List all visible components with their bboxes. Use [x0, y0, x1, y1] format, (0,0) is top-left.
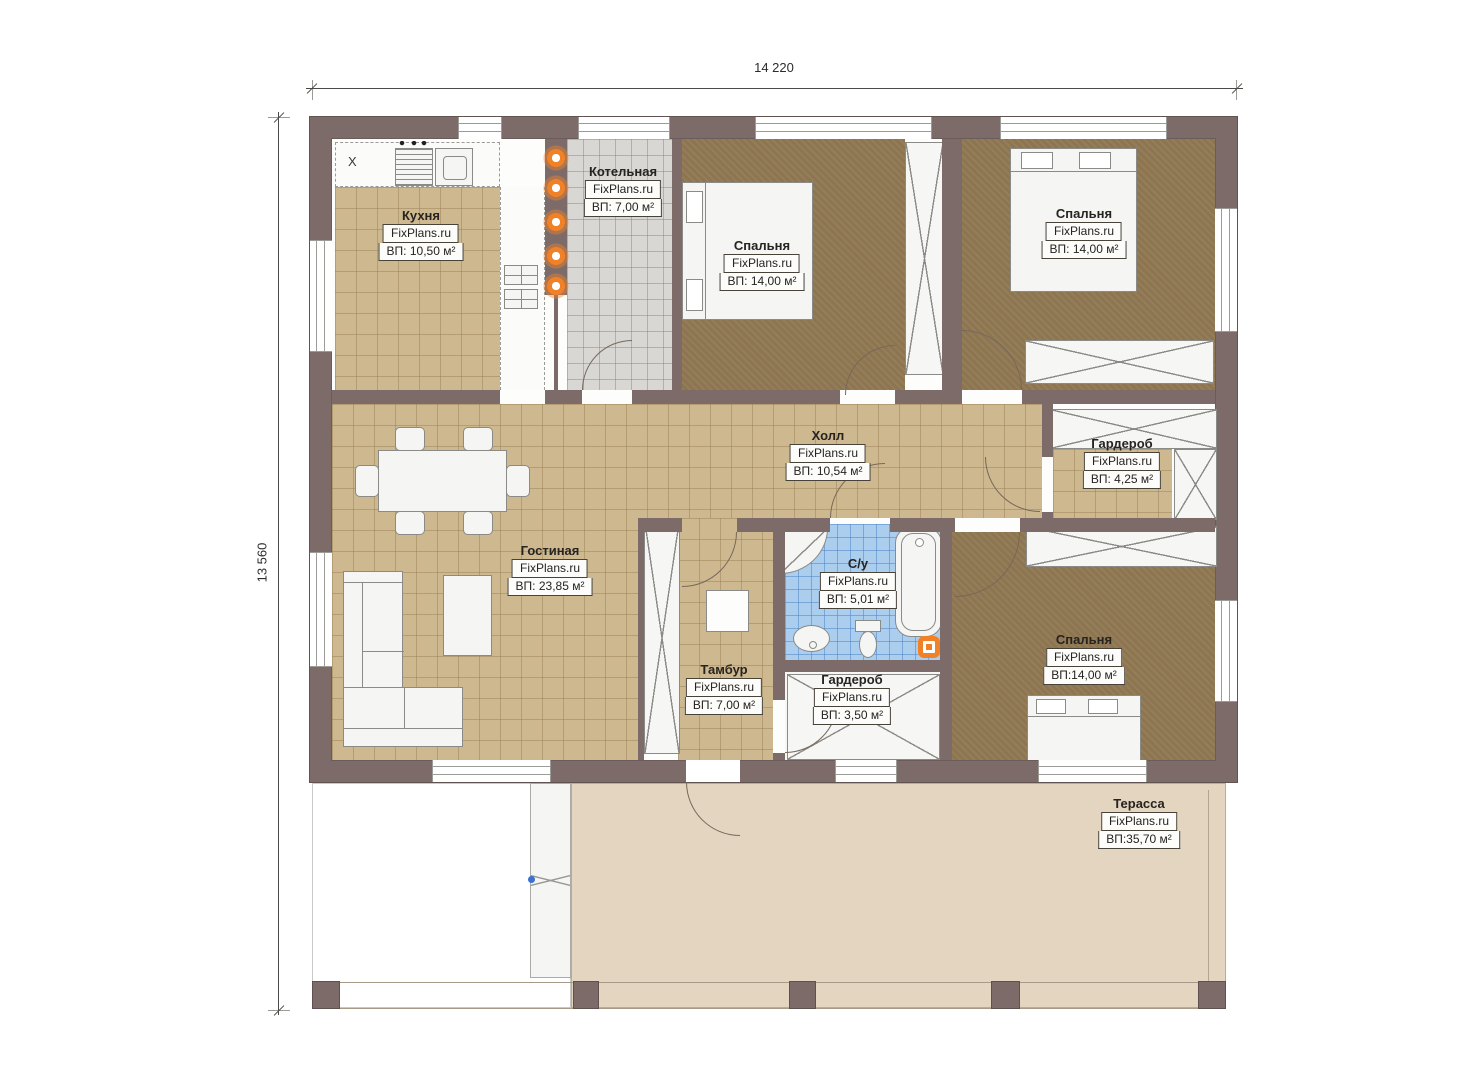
window — [578, 117, 670, 139]
pillow — [686, 279, 703, 311]
bed-footboard-line — [1028, 716, 1140, 717]
window — [835, 760, 897, 782]
terrace-post — [573, 981, 599, 1009]
bed-headboard-line — [1011, 171, 1136, 172]
radiator-icon — [543, 243, 569, 269]
dimension-left-label: 13 560 — [255, 523, 270, 603]
bed-bedroom-bottom — [1027, 695, 1141, 760]
room-area: ВП: 5,01 м² — [819, 591, 897, 609]
room-brand: FixPlans.ru — [512, 559, 588, 578]
floor-plan-canvas: 14 220 13 560 — [0, 0, 1474, 1080]
sink — [793, 625, 830, 652]
toilet-bowl — [859, 631, 877, 658]
terrace-door-opening — [686, 760, 740, 782]
room-brand: FixPlans.ru — [585, 180, 661, 199]
room-brand: FixPlans.ru — [1046, 648, 1122, 667]
room-label-wardrobe-right: Гардероб FixPlans.ru ВП: 4,25 м² — [1083, 436, 1161, 489]
room-area: ВП: 7,00 м² — [584, 199, 662, 217]
chair — [463, 427, 493, 451]
room-name: Гардероб — [1091, 436, 1152, 451]
wall-segment — [773, 518, 785, 700]
room-label-vestibule: Тамбур FixPlans.ru ВП: 7,00 м² — [685, 662, 763, 715]
wall-segment — [1022, 390, 1215, 404]
room-area: ВП: 14,00 м² — [720, 273, 805, 291]
room-brand: FixPlans.ru — [1084, 452, 1160, 471]
room-area: ВП: 7,00 м² — [685, 697, 763, 715]
fridge-symbol: X — [348, 154, 357, 169]
chair — [506, 465, 530, 497]
wall-segment — [638, 518, 644, 760]
stove-icon — [395, 148, 433, 186]
pillow — [1079, 152, 1111, 169]
window — [458, 117, 502, 139]
wall-segment — [940, 518, 952, 760]
sofa-section-horizontal — [343, 687, 463, 747]
sink-basin — [443, 156, 467, 180]
room-name: Гостиная — [521, 543, 580, 558]
wall-segment — [332, 390, 500, 404]
room-label-bedroom-middle: Спальня FixPlans.ru ВП: 14,00 м² — [720, 238, 805, 291]
bed-headboard-line — [705, 183, 706, 319]
room-area: ВП: 4,25 м² — [1083, 471, 1161, 489]
terrace-post — [991, 981, 1020, 1009]
cooktop-icon — [504, 265, 538, 285]
floor-hatch-vestibule — [706, 590, 749, 632]
dimension-top-label: 14 220 — [734, 60, 814, 75]
bathtub-drain — [915, 538, 924, 547]
radiator-icon — [543, 145, 569, 171]
entry-ramp — [530, 783, 571, 978]
room-area: ВП: 3,50 м² — [813, 707, 891, 725]
wall-segment — [785, 660, 940, 672]
room-brand: FixPlans.ru — [724, 254, 800, 273]
window — [755, 117, 932, 139]
sink-drain — [809, 641, 817, 649]
room-label-hall: Холл FixPlans.ru ВП: 10,54 м² — [786, 428, 871, 481]
wall-segment — [554, 295, 558, 390]
dimension-extension — [312, 80, 313, 100]
terrace-post — [312, 981, 340, 1009]
bathtub-inner — [901, 533, 936, 631]
wardrobe-x-bedroom-right — [1025, 340, 1214, 384]
pillow — [1088, 699, 1118, 714]
room-name: Терасса — [1113, 796, 1165, 811]
cooktop-icon — [504, 289, 538, 309]
radiator-icon — [543, 209, 569, 235]
terrace-step-line — [312, 1008, 1226, 1009]
terrace-post — [1198, 981, 1226, 1009]
room-label-living: Гостиная FixPlans.ru ВП: 23,85 м² — [508, 543, 593, 596]
terrace-step-line — [312, 982, 1226, 983]
room-area: ВП: 10,54 м² — [786, 463, 871, 481]
window — [1215, 600, 1237, 702]
wall-segment — [638, 518, 682, 532]
window — [310, 552, 332, 667]
radiator-icon — [543, 175, 569, 201]
room-brand: FixPlans.ru — [383, 224, 459, 243]
sofa-cushion-line — [362, 651, 404, 652]
pillow — [686, 191, 703, 223]
coffee-table — [443, 575, 492, 656]
room-name: Спальня — [1056, 206, 1112, 221]
wardrobe-x-bedroom-middle — [905, 142, 944, 375]
window — [1000, 117, 1167, 139]
wall-segment — [1042, 512, 1053, 518]
window — [310, 240, 332, 352]
room-area: ВП:14,00 м² — [1043, 667, 1125, 685]
water-heater-icon — [918, 636, 940, 658]
room-name: Спальня — [734, 238, 790, 253]
window — [1215, 208, 1237, 332]
wall-segment — [1020, 518, 1215, 532]
dimension-left-line — [278, 112, 279, 1015]
wardrobe-x-vestibule — [644, 522, 680, 754]
terrace-post — [789, 981, 816, 1009]
chair — [395, 427, 425, 451]
window — [432, 760, 551, 782]
wall-segment — [942, 139, 962, 390]
room-label-bathroom: С/у FixPlans.ru ВП: 5,01 м² — [819, 556, 897, 609]
room-name: Гардероб — [821, 672, 882, 687]
room-brand: FixPlans.ru — [686, 678, 762, 697]
room-area: ВП: 14,00 м² — [1042, 241, 1127, 259]
room-label-boiler: Котельная FixPlans.ru ВП: 7,00 м² — [584, 164, 662, 217]
wardrobe-x-bedroom-bottom — [1026, 526, 1217, 567]
room-name: Котельная — [589, 164, 657, 179]
room-label-bedroom-right: Спальня FixPlans.ru ВП: 14,00 м² — [1042, 206, 1127, 259]
room-label-terrace: Терасса FixPlans.ru ВП:35,70 м² — [1098, 796, 1180, 849]
sofa-cushion-line — [344, 728, 462, 729]
chair — [463, 511, 493, 535]
wall-segment — [632, 390, 840, 404]
wall-segment — [1042, 404, 1053, 457]
window — [1038, 760, 1147, 782]
ramp-marker-dot — [528, 876, 535, 883]
room-area: ВП: 10,50 м² — [379, 243, 464, 261]
room-name: Холл — [812, 428, 845, 443]
room-area: ВП: 23,85 м² — [508, 578, 593, 596]
wardrobe-x-side — [1174, 449, 1217, 520]
room-name: Тамбур — [700, 662, 747, 677]
pillow — [1021, 152, 1053, 169]
burner-dots — [398, 141, 428, 146]
pillow — [1036, 699, 1066, 714]
dining-table — [378, 450, 507, 512]
room-area: ВП:35,70 м² — [1098, 831, 1180, 849]
room-name: Спальня — [1056, 632, 1112, 647]
wall-segment — [545, 390, 582, 404]
room-name: Кухня — [402, 208, 440, 223]
bathtub — [895, 527, 942, 637]
terrace-edge-line — [1208, 790, 1209, 1002]
wall-segment — [773, 753, 785, 760]
wall-segment — [672, 139, 682, 390]
chair — [355, 465, 379, 497]
room-brand: FixPlans.ru — [814, 688, 890, 707]
chair — [395, 511, 425, 535]
sofa-cushion-line — [404, 688, 405, 728]
wall-segment — [895, 390, 962, 404]
room-brand: FixPlans.ru — [1101, 812, 1177, 831]
room-brand: FixPlans.ru — [790, 444, 866, 463]
radiator-icon — [543, 273, 569, 299]
room-label-kitchen: Кухня FixPlans.ru ВП: 10,50 м² — [379, 208, 464, 261]
room-label-bedroom-bottom: Спальня FixPlans.ru ВП:14,00 м² — [1043, 632, 1125, 685]
room-name: С/у — [848, 556, 868, 571]
room-brand: FixPlans.ru — [820, 572, 896, 591]
sink-unit — [435, 148, 473, 186]
dimension-top-line — [306, 88, 1243, 89]
room-brand: FixPlans.ru — [1046, 222, 1122, 241]
room-label-wardrobe-small: Гардероб FixPlans.ru ВП: 3,50 м² — [813, 672, 891, 725]
